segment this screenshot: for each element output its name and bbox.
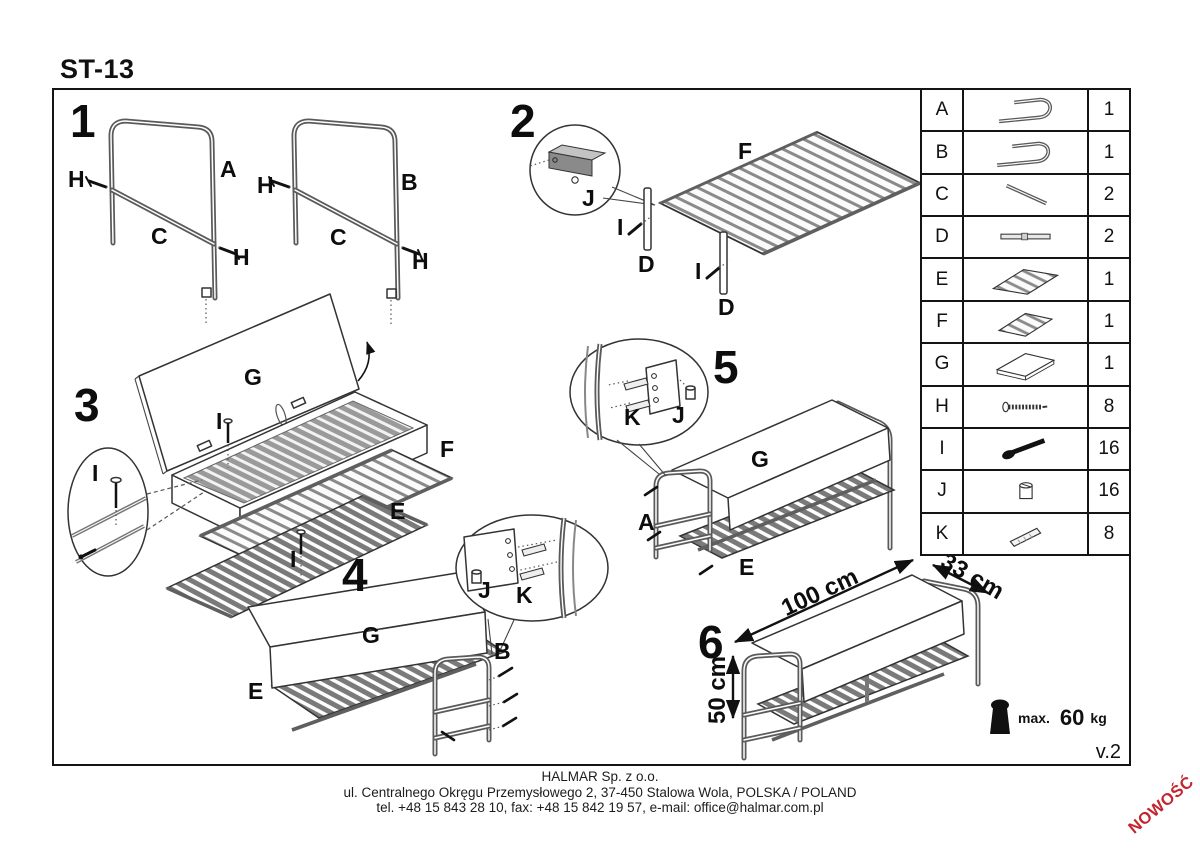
- footer-address-block: HALMAR Sp. z o.o. ul. Centralnego Okręgu…: [0, 769, 1200, 816]
- label-frame-b: B: [494, 640, 511, 663]
- part-qty: 1: [1087, 259, 1129, 299]
- product-model-title: ST-13: [60, 54, 135, 85]
- part-letter: D: [922, 217, 964, 257]
- part-qty: 16: [1087, 471, 1129, 511]
- max-load-unit: kg: [1090, 710, 1106, 726]
- step3-number: 3: [74, 382, 100, 428]
- label-screw-h: H: [412, 250, 429, 273]
- table-row: K 8: [922, 514, 1129, 554]
- part-qty: 16: [1087, 429, 1129, 469]
- part-qty: 2: [1087, 175, 1129, 215]
- table-row: F 1: [922, 302, 1129, 344]
- label-nut-j: J: [478, 579, 491, 602]
- label-shelf-e: E: [248, 680, 263, 703]
- weight-icon: [988, 698, 1012, 738]
- part-icon-bolt: [973, 432, 1078, 466]
- label-seat-g: G: [751, 448, 769, 471]
- table-row: C 2: [922, 175, 1129, 217]
- label-bar-d: D: [718, 296, 735, 319]
- part-icon-slatted-shelf: [973, 305, 1078, 339]
- company-address: ul. Centralnego Okręgu Przemysłowego 2, …: [0, 785, 1200, 801]
- version-label: v.2: [1096, 741, 1121, 764]
- label-screw-h: H: [68, 168, 85, 191]
- part-qty: 8: [1087, 387, 1129, 427]
- label-bolt-i: I: [290, 548, 296, 571]
- label-frame-b: B: [401, 171, 418, 194]
- max-load-value: 60: [1060, 705, 1084, 731]
- part-qty: 1: [1087, 132, 1129, 172]
- part-icon-side-frame: [973, 93, 1078, 127]
- diagram-area: 1 2 3 4 5 6 A H C H B H C H J I D I D F …: [52, 88, 1131, 766]
- part-icon-seat-panel: [973, 347, 1078, 381]
- label-shelf-e: E: [739, 556, 754, 579]
- part-letter: A: [922, 90, 964, 130]
- label-bar-c: C: [330, 226, 347, 249]
- label-shelf-f: F: [440, 438, 454, 461]
- step3-art: [68, 288, 452, 617]
- label-bolt-i: I: [617, 216, 623, 239]
- table-row: E 1: [922, 259, 1129, 301]
- part-icon-barrel-nut: [973, 474, 1078, 508]
- label-bolt-i: I: [695, 260, 701, 283]
- label-screw-h: H: [257, 174, 274, 197]
- assembly-instruction-sheet: ST-13: [0, 0, 1200, 848]
- part-letter: I: [922, 429, 964, 469]
- label-nut-j: J: [672, 404, 685, 427]
- company-name: HALMAR Sp. z o.o.: [0, 769, 1200, 785]
- label-bolt-i: I: [216, 410, 222, 433]
- step1-art: [86, 121, 422, 298]
- part-letter: K: [922, 514, 964, 554]
- step4-number: 4: [342, 552, 368, 598]
- parts-table: A 1 B 1: [920, 88, 1131, 556]
- part-icon-slatted-shelf: [973, 263, 1078, 297]
- label-frame-a: A: [220, 158, 237, 181]
- part-qty: 1: [1087, 344, 1129, 384]
- step6-art: [733, 560, 988, 758]
- label-dowel-k: K: [624, 406, 641, 429]
- label-seat-g: G: [362, 624, 380, 647]
- step2-number: 2: [510, 98, 536, 144]
- table-row: B 1: [922, 132, 1129, 174]
- label-shelf-e: E: [390, 500, 405, 523]
- max-load-prefix: max.: [1018, 710, 1050, 726]
- part-icon-side-frame: [973, 136, 1078, 170]
- label-screw-h: H: [233, 246, 250, 269]
- part-letter: J: [922, 471, 964, 511]
- part-icon-support-bar: [973, 178, 1078, 212]
- label-nut-j: J: [582, 187, 595, 210]
- part-letter: F: [922, 302, 964, 342]
- label-seat-g: G: [244, 366, 262, 389]
- table-row: H 8: [922, 387, 1129, 429]
- part-letter: G: [922, 344, 964, 384]
- company-contact: tel. +48 15 843 28 10, fax: +48 15 842 1…: [0, 800, 1200, 816]
- part-letter: H: [922, 387, 964, 427]
- step5-number: 5: [713, 344, 739, 390]
- part-letter: B: [922, 132, 964, 172]
- part-letter: C: [922, 175, 964, 215]
- table-row: A 1: [922, 90, 1129, 132]
- part-qty: 2: [1087, 217, 1129, 257]
- label-shelf-f: F: [738, 140, 752, 163]
- part-icon-wooden-dowel: [973, 517, 1078, 551]
- label-frame-a: A: [638, 511, 655, 534]
- max-load-info: max. 60 kg: [988, 698, 1107, 738]
- label-dowel-k: K: [516, 584, 533, 607]
- table-row: G 1: [922, 344, 1129, 386]
- part-icon-flat-bar: [973, 220, 1078, 254]
- part-qty: 1: [1087, 302, 1129, 342]
- table-row: J 16: [922, 471, 1129, 513]
- part-qty: 1: [1087, 90, 1129, 130]
- label-bar-d: D: [638, 253, 655, 276]
- label-bar-c: C: [151, 225, 168, 248]
- step1-number: 1: [70, 98, 96, 144]
- dimension-height: 50 cm: [704, 648, 732, 732]
- table-row: I 16: [922, 429, 1129, 471]
- label-bolt-i: I: [92, 462, 98, 485]
- table-row: D 2: [922, 217, 1129, 259]
- part-icon-screw: [973, 390, 1078, 424]
- part-qty: 8: [1087, 514, 1129, 554]
- part-letter: E: [922, 259, 964, 299]
